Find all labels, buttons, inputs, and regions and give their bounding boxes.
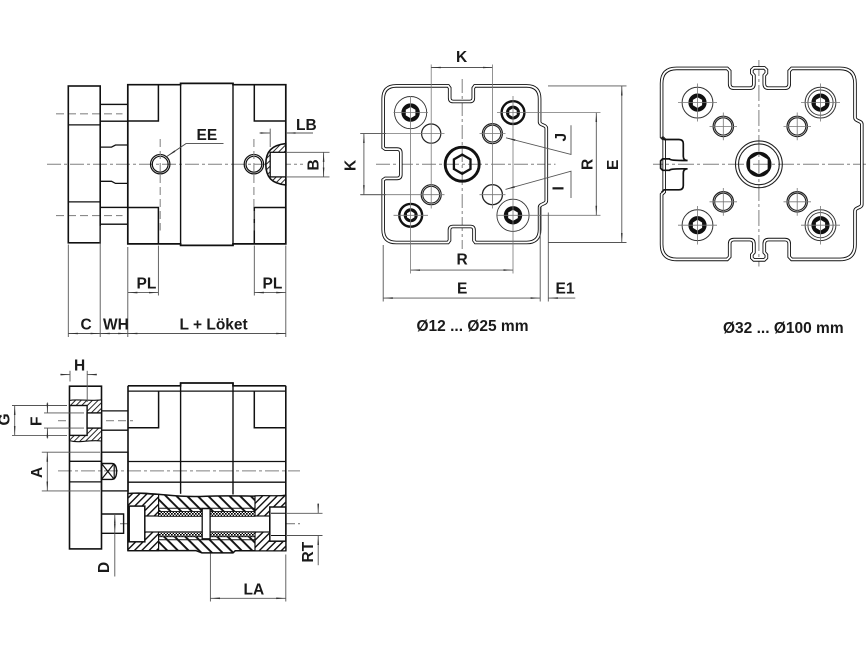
- svg-text:WH: WH: [103, 317, 129, 334]
- svg-text:E: E: [457, 281, 467, 298]
- svg-text:LB: LB: [296, 117, 317, 134]
- svg-text:PL: PL: [263, 276, 283, 293]
- svg-text:K: K: [343, 159, 360, 171]
- svg-text:F: F: [29, 417, 46, 426]
- svg-text:R: R: [457, 252, 468, 269]
- svg-text:LA: LA: [244, 582, 265, 599]
- svg-text:R: R: [580, 159, 597, 170]
- svg-text:Ø12 ... Ø25 mm: Ø12 ... Ø25 mm: [417, 318, 529, 335]
- svg-text:C: C: [81, 317, 92, 334]
- svg-text:K: K: [456, 49, 468, 66]
- svg-text:J: J: [553, 133, 570, 142]
- svg-text:RT: RT: [300, 541, 317, 562]
- svg-text:L + Löket: L + Löket: [180, 317, 248, 334]
- svg-text:G: G: [0, 413, 14, 425]
- svg-text:B: B: [306, 159, 323, 170]
- svg-text:EE: EE: [197, 127, 218, 144]
- svg-text:Ø32 ... Ø100 mm: Ø32 ... Ø100 mm: [723, 320, 844, 337]
- svg-text:D: D: [96, 562, 113, 573]
- svg-text:E: E: [605, 160, 622, 170]
- svg-text:E1: E1: [556, 281, 575, 298]
- svg-text:A: A: [29, 467, 46, 478]
- svg-text:H: H: [74, 358, 85, 375]
- svg-text:I: I: [551, 186, 568, 190]
- svg-text:PL: PL: [137, 276, 157, 293]
